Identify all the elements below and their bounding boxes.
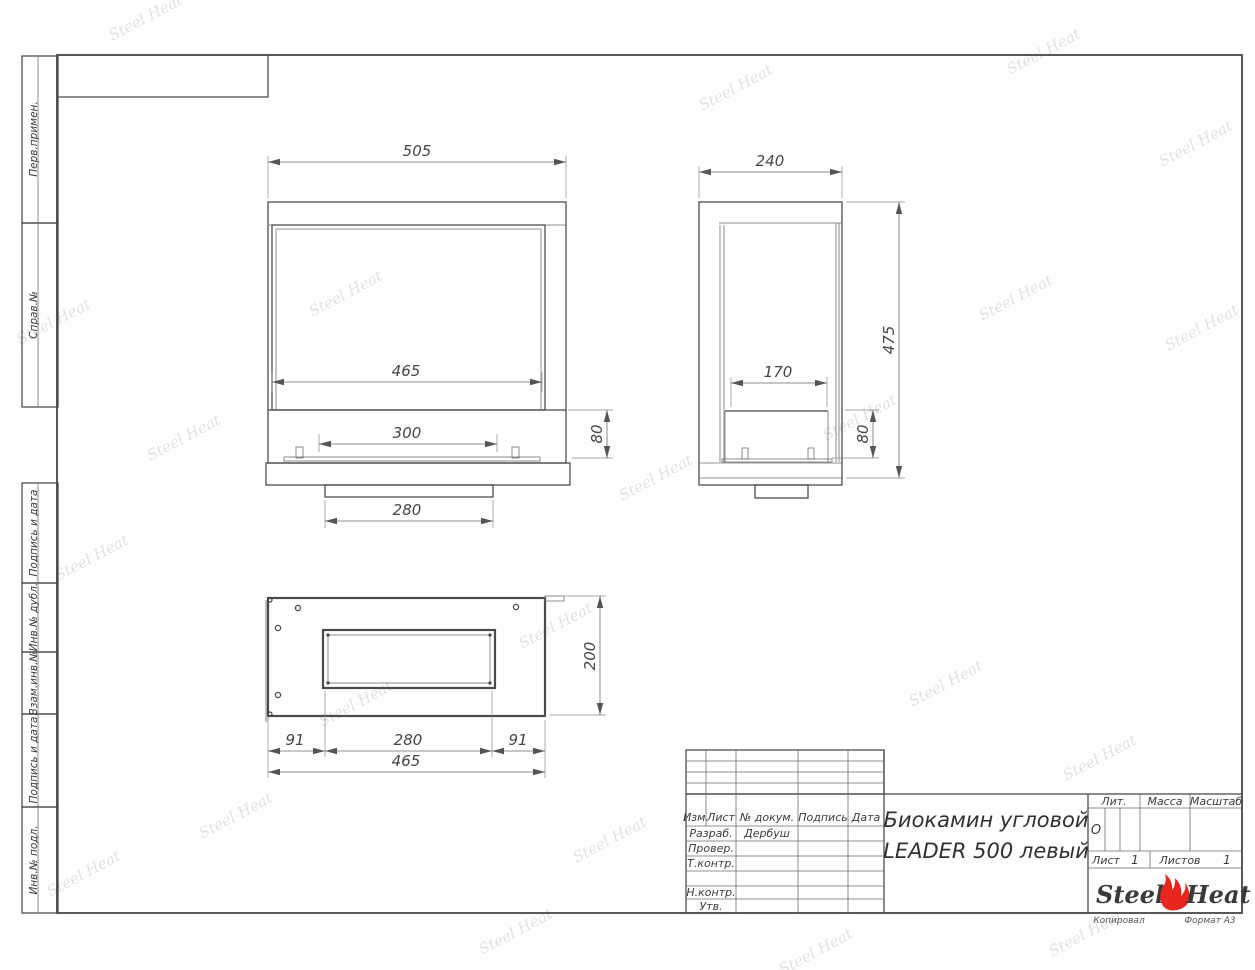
bottom-view-flange [545,596,564,601]
mount-hole [275,625,280,630]
sheet-label: Лист [1091,854,1120,867]
mount-hole [268,598,272,602]
watermark: Steel Heat [106,0,186,44]
side-base-protrusion [755,485,808,498]
row-razrab-value: Дербуш [743,827,790,840]
drawing-sheet-svg: Steel HeatSteel HeatSteel HeatSteel Heat… [0,0,1255,970]
bottom-opening-outer [323,630,495,688]
lit-label: Лит. [1100,795,1126,808]
logo-text-heat: Heat [1185,880,1251,909]
front-base-protrusion [325,485,493,497]
mount-hole [513,604,518,609]
dim-front-base-width: 280 [393,501,422,519]
dim-bottom-left-offset: 91 [285,731,304,749]
col-doc: № докум. [739,811,794,824]
sheets-total: 1 [1223,853,1231,867]
watermark: Steel Heat [14,294,94,348]
watermark: Steel Heat [44,846,124,900]
watermark: Steel Heat [1060,730,1140,784]
watermark: Steel Heat [52,530,132,584]
sheets-label: Листов [1158,854,1200,867]
dim-bottom-depth: 200 [581,642,599,671]
watermark: Steel Heat [1004,24,1084,78]
dim-front-burner-width: 300 [393,424,422,442]
watermark: Steel Heat [306,266,386,320]
mount-hole [268,712,272,716]
mass-label: Масса [1147,795,1182,808]
drawing-sheet: Steel HeatSteel HeatSteel HeatSteel Heat… [0,0,1255,970]
sheet-number: 1 [1131,853,1139,867]
dim-front-width: 505 [403,142,432,160]
side-view: 240 475 170 80 [699,152,905,498]
dim-front-glass-width: 465 [392,362,421,380]
row-utv-label: Утв. [699,900,722,913]
watermark: Steel Heat [144,410,224,464]
sidebar-label-inv-dubl: Инв.№ дубл. [28,583,40,652]
row-razrab-label: Разраб. [689,827,732,840]
sidebar-label-inv-podl: Инв.№ подл. [28,825,40,894]
sidebar-label-podpis-data1: Подпись и дата [28,490,40,577]
document-title-line1: Биокамин угловой [884,808,1089,832]
watermark: Steel Heat [696,60,776,114]
mount-hole [275,692,280,697]
watermark: Steel Heat [1162,300,1242,354]
col-sign: Подпись [798,811,847,824]
sidebar-label-vzam-inv: Взам.инв.№ [28,651,40,716]
col-izm: Изм. [683,811,709,824]
dim-bottom-right-offset: 91 [508,731,527,749]
dim-front-shelf-height: 80 [588,424,606,443]
watermark: Steel Heat [196,788,276,842]
dim-bottom-opening-width: 280 [394,731,423,749]
dim-side-depth: 240 [756,152,785,170]
mount-hole [295,605,300,610]
scale-label: Масштаб [1190,795,1242,808]
front-view: 505 465 300 280 80 [266,142,613,528]
dim-bottom-total-width: 465 [392,752,421,770]
logo-text-steel: Steel [1096,880,1164,909]
lit-value: О [1091,823,1101,838]
watermark: Steel Heat [616,450,696,504]
sidebar-label-sprav-no: Справ.№ [28,291,40,339]
watermark: Steel Heat [1156,116,1236,170]
dim-side-height: 475 [880,326,898,355]
watermark: Steel Heat [976,270,1056,324]
dim-side-shelf-height: 80 [854,424,872,443]
sidebar-label-perv-primen: Перв.примен. [28,101,40,176]
row-tkontr-label: Т.контр. [687,857,735,870]
format-label: Формат А3 [1184,916,1236,926]
steelheat-logo: Steel Heat [1096,874,1251,911]
col-list: Лист [706,811,735,824]
watermark: Steel Heat [1046,906,1126,960]
watermark: Steel Heat [570,812,650,866]
sidebar-label-podpis-data2: Подпись и дата [28,717,40,804]
bottom-opening-inner [328,635,490,683]
row-prover-label: Провер. [688,842,734,855]
copied-label: Копировал [1093,916,1145,926]
col-date: Дата [851,811,881,824]
document-title-line2: LEADER 500 левый [883,839,1089,863]
dim-side-inner-depth: 170 [764,363,793,381]
watermark: Steel Heat [906,656,986,710]
watermark: Steel Heat [776,924,856,970]
top-left-stamp-box [57,55,268,97]
sidebar: Перв.примен. Справ.№ Подпись и дата Инв.… [22,56,58,913]
row-nkontr-label: Н.контр. [686,886,735,899]
title-block: Изм. Лист № докум. Подпись Дата Разраб. … [683,750,1251,913]
